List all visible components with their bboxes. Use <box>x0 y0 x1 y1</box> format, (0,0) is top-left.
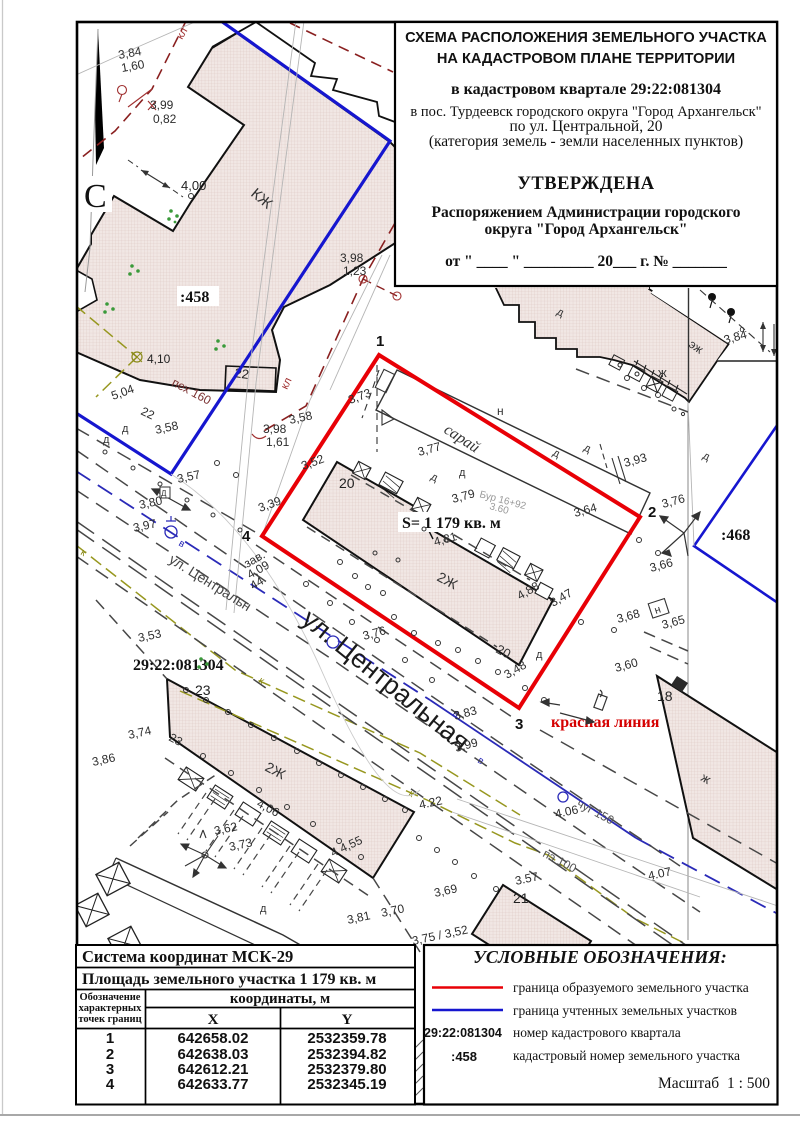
svg-text:642658.02: 642658.02 <box>178 1030 249 1047</box>
svg-text:координаты, м: координаты, м <box>230 991 330 1007</box>
svg-text:УСЛОВНЫЕ ОБОЗНАЧЕНИЯ:: УСЛОВНЫЕ ОБОЗНАЧЕНИЯ: <box>473 947 726 967</box>
svg-text:3,98: 3,98 <box>263 422 287 436</box>
svg-text:0,82: 0,82 <box>153 112 177 126</box>
svg-text::458: :458 <box>180 289 209 306</box>
svg-text:граница учтенных земельных уча: граница учтенных земельных участков <box>513 1003 737 1018</box>
svg-text:Д: Д <box>161 489 167 498</box>
svg-text:номер кадастрового квартала: номер кадастрового квартала <box>513 1025 681 1040</box>
svg-text:2: 2 <box>648 504 656 521</box>
svg-text:2532345.19: 2532345.19 <box>307 1076 386 1093</box>
svg-text:29:22:081304: 29:22:081304 <box>424 1026 502 1040</box>
svg-text:642633.77: 642633.77 <box>178 1076 249 1093</box>
svg-text:ж: ж <box>658 365 667 380</box>
svg-text:д: д <box>122 423 129 435</box>
svg-text:20: 20 <box>339 475 355 491</box>
svg-text:от " ____ " _________ 20___ г.: от " ____ " _________ 20___ г. № _______ <box>445 253 727 270</box>
svg-text:Распоряжением Администрации го: Распоряжением Администрации городского <box>432 204 741 221</box>
svg-text:Обозначение: Обозначение <box>80 992 141 1003</box>
svg-text:д: д <box>536 649 543 661</box>
svg-text:точек границ: точек границ <box>78 1014 141 1025</box>
svg-text:д: д <box>459 467 466 479</box>
svg-text:(категория земель - земли насе: (категория земель - земли населенных пун… <box>429 133 743 150</box>
svg-text:.о.: .о. <box>737 324 747 334</box>
svg-text:красная линия: красная линия <box>551 714 660 731</box>
svg-text:Y: Y <box>342 1012 353 1028</box>
svg-text:Площадь земельного участка 1 1: Площадь земельного участка 1 179 кв. м <box>82 971 376 988</box>
svg-text:3,99: 3,99 <box>150 98 174 112</box>
svg-text:4,10: 4,10 <box>147 352 171 366</box>
svg-text:Система координат МСК-29: Система координат МСК-29 <box>82 947 293 966</box>
svg-text:С: С <box>84 178 107 215</box>
svg-text:23: 23 <box>195 682 211 698</box>
svg-text:д: д <box>260 903 267 915</box>
svg-text:характерных: характерных <box>79 1003 142 1014</box>
svg-text:НА КАДАСТРОВОМ ПЛАНЕ ТЕРРИТОРИ: НА КАДАСТРОВОМ ПЛАНЕ ТЕРРИТОРИИ <box>437 51 735 67</box>
svg-text:1,23: 1,23 <box>343 264 367 278</box>
svg-text:3,98: 3,98 <box>340 251 364 265</box>
svg-text::458: :458 <box>451 1049 477 1064</box>
svg-text:в кадастровом квартале 29:22:0: в кадастровом квартале 29:22:081304 <box>451 81 721 98</box>
svg-text:29:22:081304: 29:22:081304 <box>133 657 224 674</box>
svg-text:граница образуемого земельного: граница образуемого земельного участка <box>513 980 749 995</box>
svg-text:УТВЕРЖДЕНА: УТВЕРЖДЕНА <box>517 174 654 194</box>
svg-text::468: :468 <box>721 527 750 544</box>
svg-text:н: н <box>497 404 504 418</box>
svg-text:Масштаб 1 : 500: Масштаб 1 : 500 <box>658 1075 770 1092</box>
svg-text:4: 4 <box>242 528 251 545</box>
svg-text:21: 21 <box>513 890 529 906</box>
svg-text:2532359.78: 2532359.78 <box>307 1030 386 1047</box>
svg-text:1: 1 <box>376 333 384 350</box>
svg-text:4,00: 4,00 <box>181 178 206 193</box>
svg-text:округа "Город Архангельск": округа "Город Архангельск" <box>484 221 687 238</box>
svg-text:4: 4 <box>106 1076 115 1093</box>
svg-text:1,61: 1,61 <box>266 435 290 449</box>
svg-text:кадастровый номер земельного у: кадастровый номер земельного участка <box>513 1048 740 1063</box>
svg-text:X: X <box>208 1012 219 1028</box>
svg-text:18: 18 <box>657 688 673 704</box>
svg-text:3: 3 <box>515 716 523 733</box>
svg-text:СХЕМА РАСПОЛОЖЕНИЯ ЗЕМЕЛЬНОГО: СХЕМА РАСПОЛОЖЕНИЯ ЗЕМЕЛЬНОГО УЧАСТКА <box>405 30 767 46</box>
svg-text:1: 1 <box>106 1030 114 1047</box>
svg-text:д: д <box>103 434 110 446</box>
